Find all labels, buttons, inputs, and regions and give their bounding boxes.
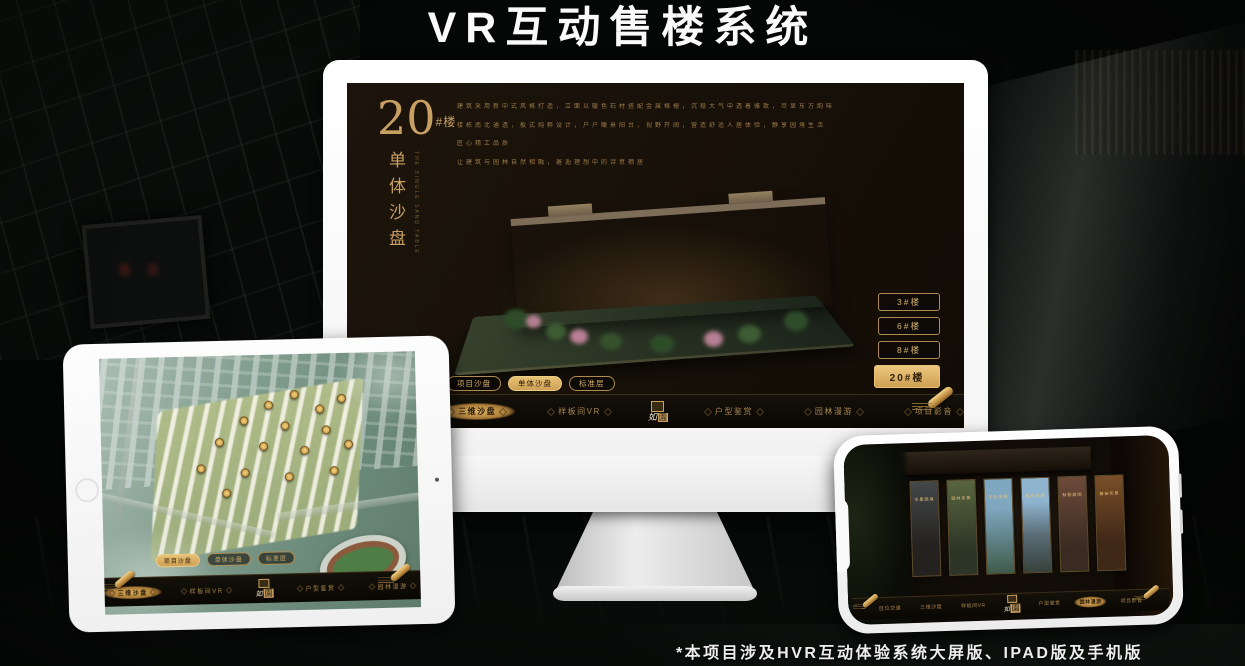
building-pin[interactable] [289,390,298,399]
tree-decoration [600,333,622,350]
brand-logo: 如園 [1003,594,1021,615]
scroll-menu-icon[interactable] [110,571,139,592]
background-plaque [82,215,211,329]
building-pin[interactable] [337,394,346,403]
scroll-lines [1134,596,1147,601]
logo-char-right: 園 [658,413,668,422]
logo-char-right: 園 [263,589,273,598]
gallery-panel[interactable]: 精装实景 [1094,474,1126,571]
tree-decoration [650,335,674,353]
nav-item-showroom-vr[interactable]: 样板间VR [956,600,991,612]
tablet-screen: 项目沙盘 单体沙盘 标准层 区位交通 三维沙盘 样板间VR 如園 户型鉴赏 园林… [99,351,421,615]
gallery-panel[interactable]: 楼栋风貌 [1020,476,1052,573]
panel-label: 秋韵庭院 [1059,491,1086,498]
brand-logo-name: 如園 [648,413,668,423]
vertical-title-english: THE SINGLE SAND TABLE [413,151,419,255]
logo-char-left: 如 [648,413,657,423]
building-number-text: 20 [377,91,436,145]
diamond-icon [225,586,232,593]
tree-decoration [526,315,541,328]
panel-label: 水墨园境 [911,496,938,503]
scroll-menu-icon[interactable] [1140,585,1163,602]
logo-char-right: 園 [1011,603,1021,612]
nav-item-label: 户型鉴赏 [305,583,335,593]
building-pin[interactable] [329,466,338,475]
subtab-single-sandtable[interactable]: 单体沙盘 [508,376,562,391]
building-pin[interactable] [215,438,224,447]
page-title: VR互动售楼系统 [0,0,1245,57]
brand-logo: 如園 [255,579,273,599]
description-line: 楼栋南北通透，板式纯粹设计，户户瞰景阳台，视野开阔，营造舒适人居体验，静享园境生… [457,122,877,132]
tablet-home-button[interactable] [75,478,100,503]
floor-button-group: 3#楼 6#楼 8#楼 20#楼 [874,293,940,388]
subtab-project-sandtable[interactable]: 项目沙盘 [447,376,501,391]
subtab-single-sandtable[interactable]: 单体沙盘 [207,552,251,566]
nav-item-floorplans[interactable]: 户型鉴赏 [1033,597,1065,609]
diamond-icon [499,407,507,415]
tablet-camera-icon [435,478,439,482]
phone-side-button[interactable] [1179,510,1183,534]
building-roof-cap [728,191,773,205]
diamond-icon [181,587,188,594]
nav-item-sandtable[interactable]: 三维沙盘 [915,601,947,613]
nav-item-label: 园林漫游 [1079,598,1101,606]
diamond-icon [150,588,157,595]
brand-logo-name: 如園 [1004,603,1021,615]
diamond-icon [368,583,375,590]
gallery-panel[interactable]: 天际景观 [983,478,1015,575]
nav-item-label: 样板间VR [961,602,986,610]
scroll-lines [912,403,932,410]
tree-decoration [738,325,761,343]
nav-item-garden-tour[interactable]: 园林漫游 [796,403,872,420]
building-block [511,197,833,328]
diamond-icon [904,407,912,415]
seal-icon [651,401,664,412]
building-roof-cap [548,203,593,217]
floor-button-3[interactable]: 3#楼 [878,293,940,311]
subtab-standard-floor[interactable]: 标准层 [258,551,295,565]
nav-item-showroom-vr[interactable]: 样板间VR [176,583,238,598]
nav-item-label: 户型鉴赏 [1038,599,1060,607]
tree-decoration [546,323,566,340]
diamond-icon [756,407,764,415]
scroll-menu-icon[interactable] [386,564,415,585]
scroll-lines [853,604,866,609]
phone-notch [835,498,850,572]
diamond-icon [296,584,303,591]
nav-item-label: 三维沙盘 [458,406,496,417]
gallery-panels: 水墨园境 园林实景 天际景观 楼栋风貌 秋韵庭院 精装实景 [909,474,1126,577]
vertical-title: 单体沙盘 [383,151,408,255]
nav-item-floorplans[interactable]: 户型鉴赏 [291,580,349,594]
building-number-suffix: #楼 [436,115,457,129]
subtab-project-sandtable-active[interactable]: 项目沙盘 [156,553,200,567]
diamond-icon [704,407,712,415]
tree-decoration [784,311,808,331]
tablet-mockup: 项目沙盘 单体沙盘 标准层 区位交通 三维沙盘 样板间VR 如園 户型鉴赏 园林… [63,335,456,632]
diamond-icon [804,407,812,415]
building-number: 20#楼 [377,93,456,143]
panel-label: 园林实景 [948,495,975,502]
building-pin[interactable] [241,468,250,477]
floor-button-20-active[interactable]: 20#楼 [874,365,940,388]
brand-logo-name: 如園 [255,589,273,599]
scroll-lines [102,584,118,590]
tablet-subtabs: 项目沙盘 单体沙盘 标准层 [156,551,295,567]
scroll-lines [378,577,394,583]
description-line: 匠心精工品质 [457,140,877,150]
interior-beam [896,446,1092,476]
desktop-subtabs: 项目沙盘 单体沙盘 标准层 [447,376,615,391]
stage: VR互动售楼系统 20#楼 单体沙盘 THE SINGLE SAND TABLE… [0,0,1245,666]
diamond-icon [604,407,612,415]
nav-item-label: 样板间VR [558,406,601,417]
footnote-text: *本项目涉及HVR互动体验系统大屏版、IPAD版及手机版 [676,639,1143,663]
tree-decoration [704,331,723,347]
nav-item-label: 户型鉴赏 [715,406,753,417]
logo-char-left: 如 [256,590,263,598]
subtab-standard-floor[interactable]: 标准层 [569,376,615,391]
nav-item-garden-tour-active[interactable]: 园林漫游 [1074,596,1106,608]
panel-label: 楼栋风貌 [1022,493,1049,500]
logo-char-left: 如 [1004,606,1010,613]
panel-label: 精装实景 [1096,490,1123,497]
diamond-icon [856,407,864,415]
building-pin[interactable] [322,425,331,434]
nav-item-label: 区位交通 [879,604,901,612]
brand-logo: 如園 [648,401,668,423]
gallery-panel[interactable]: 园林实景 [946,479,978,576]
panel-label: 天际景观 [985,494,1012,501]
building-pin[interactable] [196,464,205,473]
seal-icon [259,579,270,588]
scroll-menu-icon[interactable] [859,594,882,611]
phone-side-button[interactable] [1178,474,1182,498]
scroll-menu-icon[interactable] [922,387,958,413]
nav-item-sandtable-active[interactable]: 三维沙盘 [439,403,515,420]
gallery-panel[interactable]: 水墨园境 [909,480,941,577]
nav-item-label: 三维沙盘 [920,603,942,611]
diamond-icon [337,583,344,590]
description-line: 建筑采用新中式风格打造，立面以暖色石材搭配金属格栅，沉稳大气中透着雅致，尽显东方… [457,103,877,113]
floor-button-6[interactable]: 6#楼 [878,317,940,335]
phone-mockup: 水墨园境 园林实景 天际景观 楼栋风貌 秋韵庭院 精装实景 区位交通 三维沙盘 … [833,426,1184,635]
phone-screen: 水墨园境 园林实景 天际景观 楼栋风貌 秋韵庭院 精装实景 区位交通 三维沙盘 … [843,435,1173,625]
nav-item-showroom-vr[interactable]: 样板间VR [539,403,620,420]
monitor-base [553,586,757,601]
nav-item-label: 样板间VR [190,585,224,595]
building-3d-render[interactable] [442,163,882,408]
building-pin[interactable] [281,421,290,430]
tree-decoration [570,329,588,344]
nav-item-label: 园林漫游 [815,406,853,417]
floor-button-8[interactable]: 8#楼 [878,341,940,359]
gallery-panel[interactable]: 秋韵庭院 [1057,475,1089,572]
background-building-texture [1075,50,1245,155]
diamond-icon [547,407,555,415]
fog-overlay [335,351,421,422]
seal-icon [1007,594,1017,602]
tree-decoration [504,309,528,329]
nav-item-floorplans[interactable]: 户型鉴赏 [696,403,772,420]
